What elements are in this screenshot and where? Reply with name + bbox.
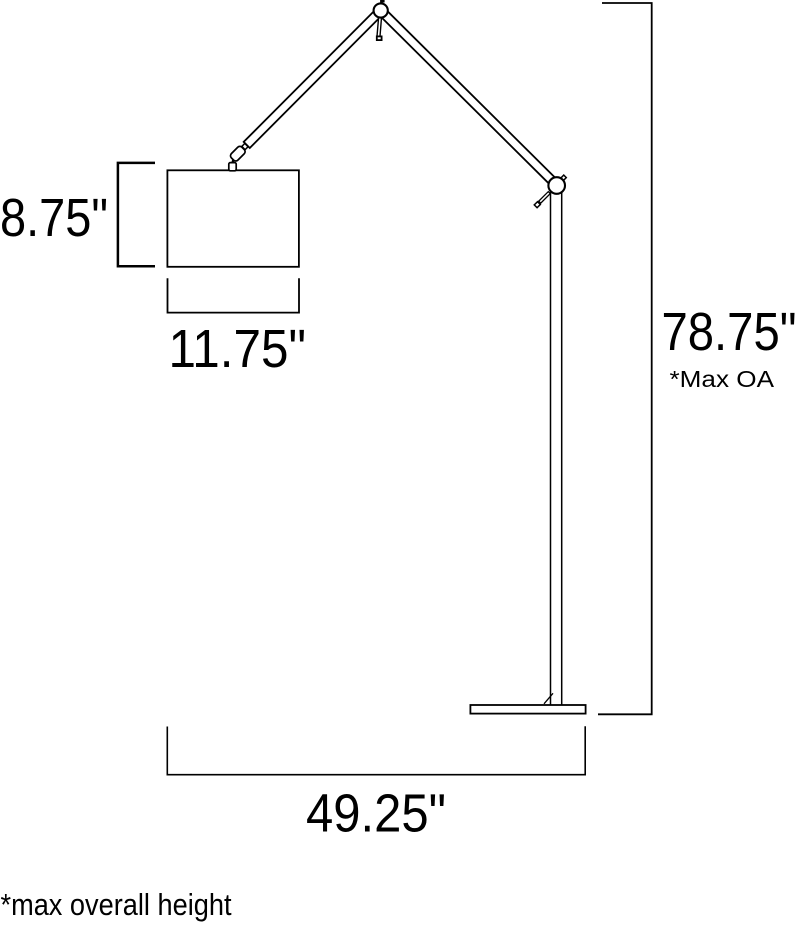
svg-text:78.75": 78.75" — [662, 302, 797, 362]
svg-text:49.25": 49.25" — [306, 784, 446, 844]
svg-text:*Max OA: *Max OA — [670, 366, 775, 392]
svg-text:11.75": 11.75" — [169, 319, 307, 379]
svg-text:*max overall height: *max overall height — [1, 888, 232, 922]
svg-text:8.75": 8.75" — [0, 188, 108, 248]
